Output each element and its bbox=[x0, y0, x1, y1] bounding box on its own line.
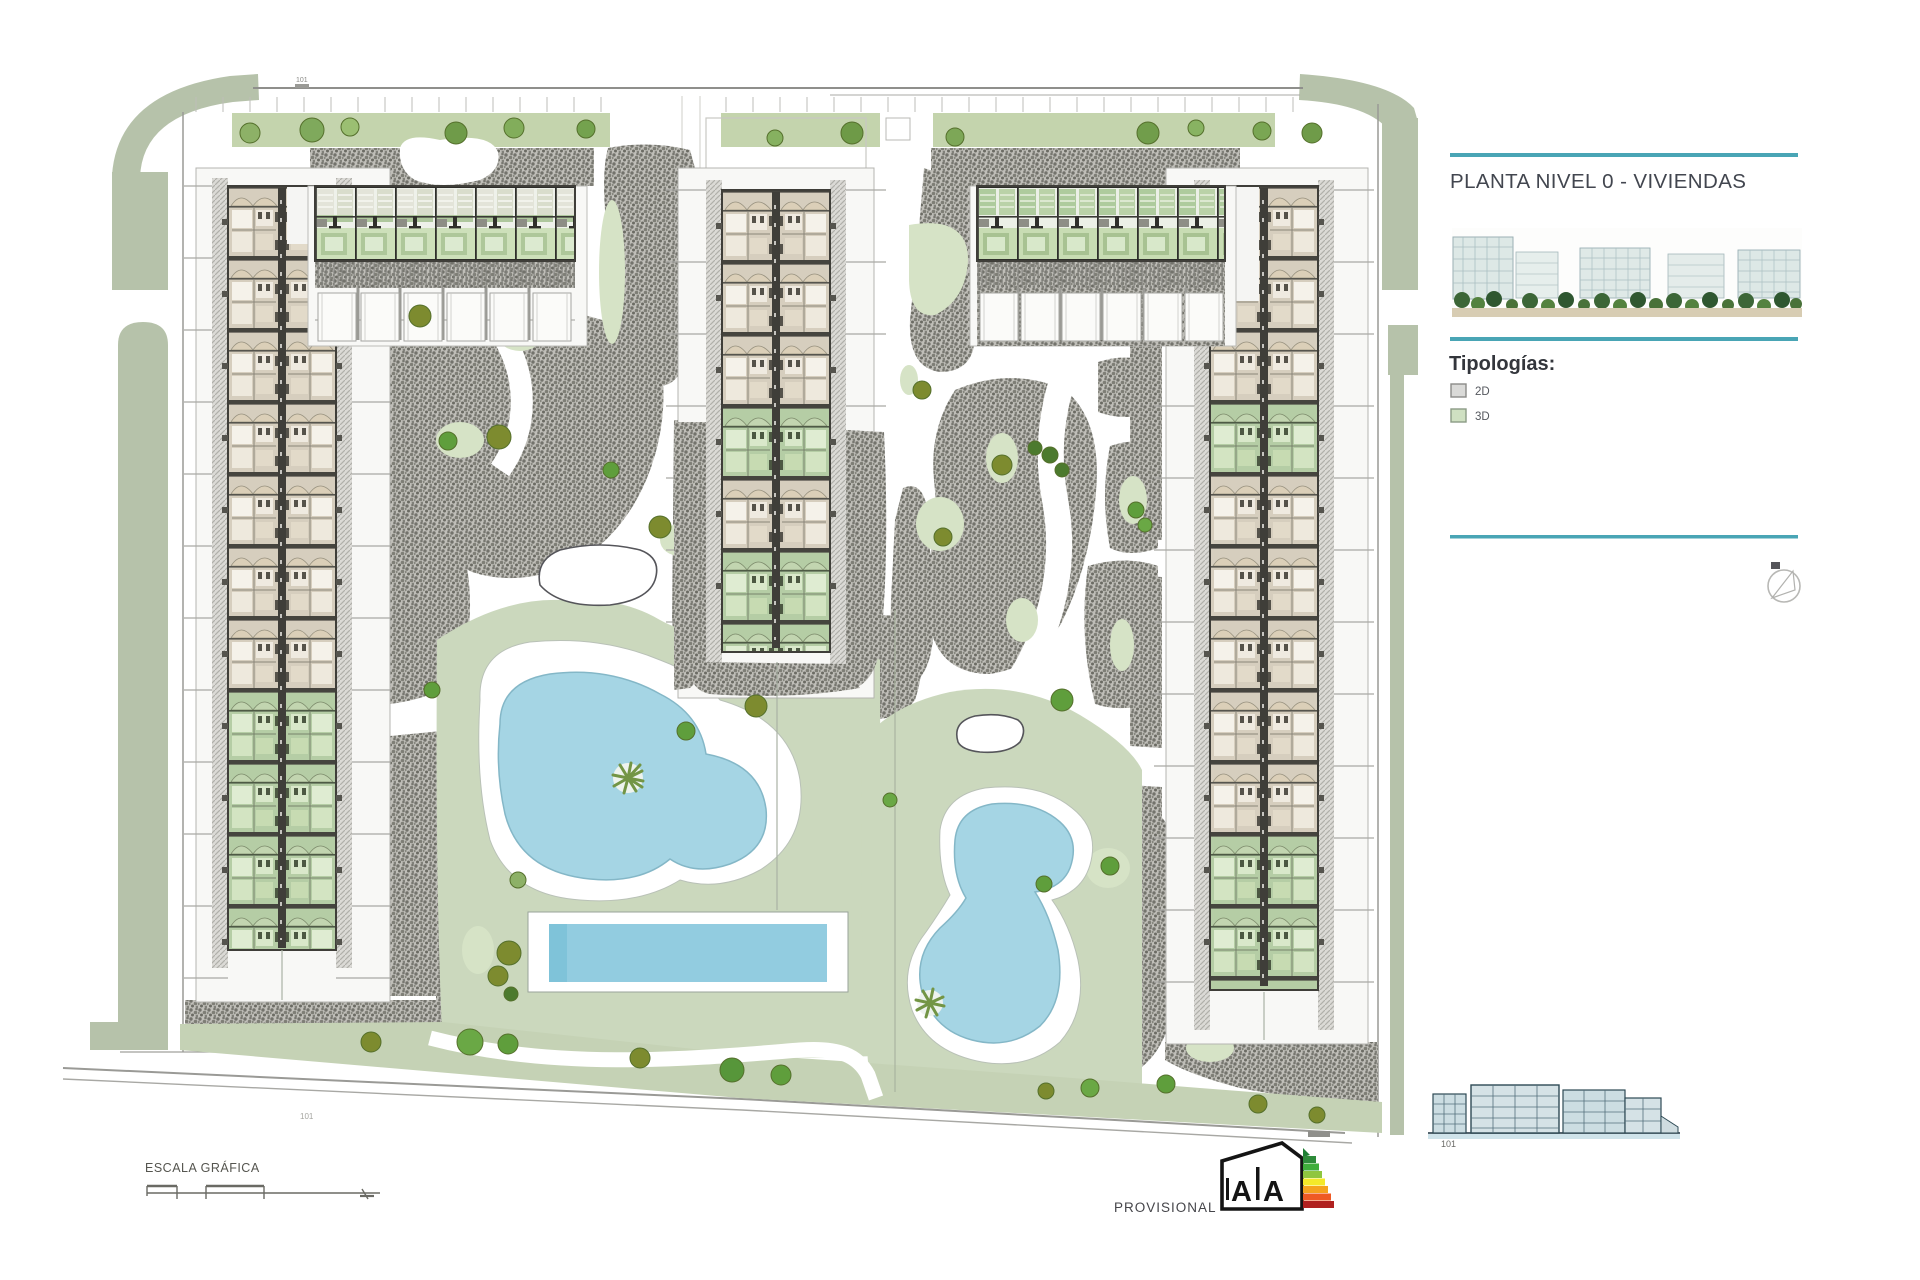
svg-text:Tipologías:: Tipologías: bbox=[1449, 353, 1555, 375]
svg-text:2D: 2D bbox=[1475, 386, 1490, 398]
svg-text:A: A bbox=[1231, 1176, 1252, 1208]
svg-text:PLANTA NIVEL 0 - VIVIENDAS: PLANTA NIVEL 0 - VIVIENDAS bbox=[1450, 170, 1746, 193]
svg-text:101: 101 bbox=[296, 77, 308, 84]
svg-text:3D: 3D bbox=[1475, 411, 1490, 423]
svg-text:101: 101 bbox=[300, 1112, 314, 1121]
svg-text:ESCALA GRÁFICA: ESCALA GRÁFICA bbox=[145, 1160, 260, 1175]
svg-text:A: A bbox=[1263, 1176, 1284, 1208]
svg-text:101: 101 bbox=[1441, 1139, 1456, 1149]
svg-text:PROVISIONAL: PROVISIONAL bbox=[1114, 1200, 1217, 1215]
